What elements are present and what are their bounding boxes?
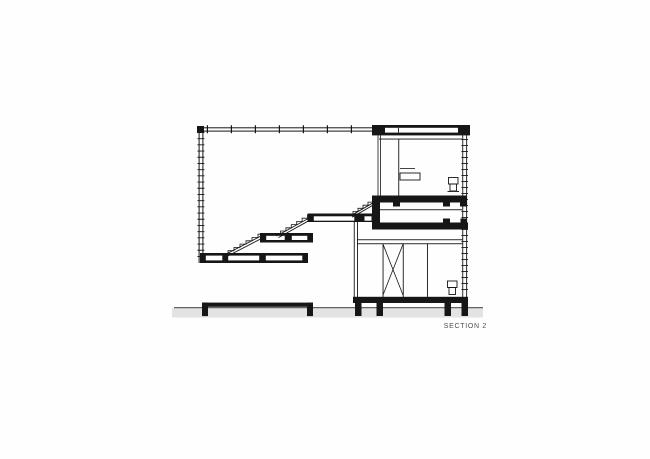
- roof-line-top: [200, 127, 380, 128]
- floor-joist-stub: [443, 203, 450, 207]
- floor-joist-stub: [393, 203, 400, 207]
- floor-joist-stub: [460, 203, 467, 207]
- toilet-bowl: [450, 184, 457, 191]
- toilet-icon-upper: [448, 178, 460, 192]
- bedroom-desk: [400, 173, 420, 180]
- ground-fill: [172, 308, 483, 318]
- mid-wall-line-a: [378, 135, 379, 195]
- roof-slab-joint: [398, 128, 399, 133]
- under-slab-trim-line: [380, 209, 462, 210]
- architectural-section-sheet: SECTION 2: [0, 0, 650, 459]
- section-label: SECTION 2: [444, 323, 487, 330]
- left-wall-outer-line: [199, 127, 200, 263]
- intermediate-slab: [378, 223, 468, 230]
- lower-ceiling-line: [358, 239, 463, 240]
- floor-deck-opening: [206, 256, 223, 261]
- intermediate-slab-stub: [443, 219, 450, 223]
- bedroom-shelf-line: [400, 168, 415, 169]
- mid-wall-line-b: [380, 135, 381, 195]
- bedroom-ceiling-line: [379, 139, 462, 140]
- lower-room: [353, 219, 468, 317]
- floor-deck-opening: [228, 256, 259, 261]
- right-wall-inner-line: [466, 135, 467, 297]
- roof-slab-core: [385, 128, 458, 133]
- deck-post-right: [307, 303, 313, 317]
- bedroom-partition-line: [398, 140, 399, 196]
- right-wall-outer-line: [462, 135, 463, 297]
- deck-post-left: [202, 303, 208, 317]
- stair-landing-opening: [314, 216, 355, 220]
- stair-platform-mid-opening: [266, 236, 285, 240]
- brace-panel-edge: [383, 244, 384, 297]
- brace-panel: [383, 244, 404, 297]
- section-drawing: SECTION 2: [0, 0, 650, 459]
- toilet-tank: [448, 281, 458, 288]
- floor-deck-opening: [266, 256, 303, 261]
- toilet-icon-lower: [448, 281, 458, 295]
- brace-panel-edge: [403, 244, 404, 297]
- ground: [172, 307, 483, 317]
- footing: [462, 303, 469, 316]
- roof-line-bottom: [200, 131, 380, 132]
- lower-left-wall-line-a: [354, 222, 355, 297]
- bedroom-floor-slab: [372, 196, 467, 203]
- lower-partition-line: [427, 244, 428, 297]
- footing: [355, 303, 362, 316]
- stair-platform-mid-opening: [292, 236, 308, 240]
- lower-left-wall-line-b: [357, 222, 358, 297]
- toilet-base-line: [448, 191, 460, 192]
- stair-landing-opening: [365, 216, 372, 220]
- intermediate-slab-stub: [461, 219, 468, 223]
- footing: [377, 303, 384, 316]
- stairs: [223, 199, 380, 258]
- toilet-bowl: [449, 288, 456, 295]
- ground-line: [174, 307, 483, 308]
- toilet-tank: [449, 178, 459, 185]
- base-slab: [353, 297, 468, 303]
- lower-ceiling-trim-line: [358, 243, 463, 244]
- deck-slab: [202, 303, 313, 307]
- left-wall-inner-line: [202, 127, 203, 263]
- upper-bedroom: [372, 125, 470, 297]
- footing: [445, 303, 452, 316]
